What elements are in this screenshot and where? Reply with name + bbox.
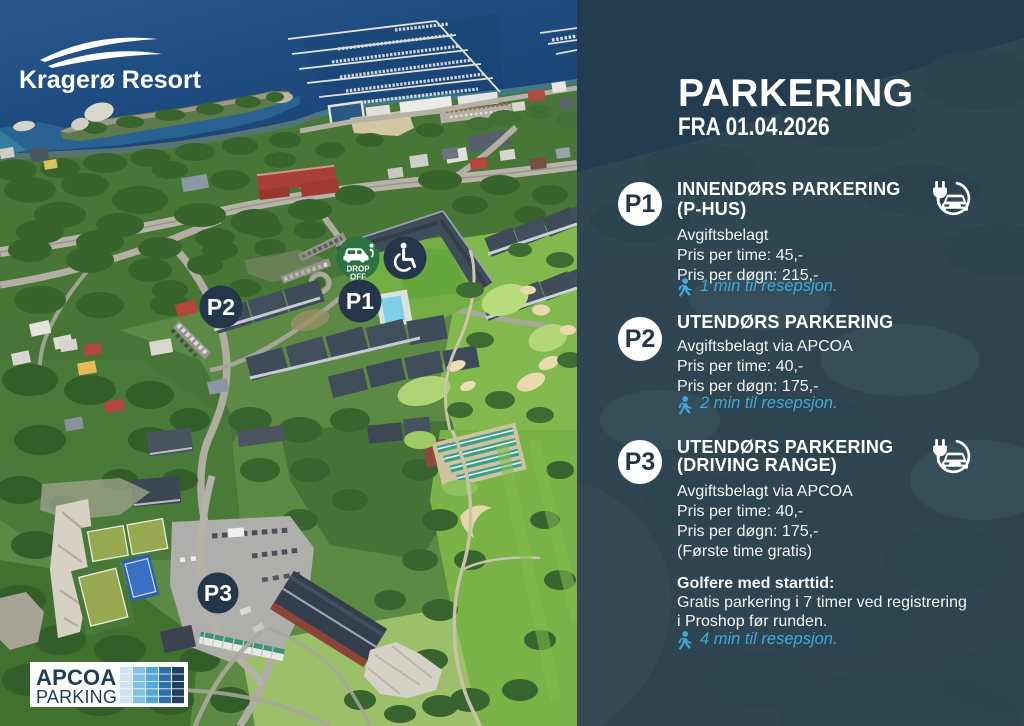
svg-text:PARKING: PARKING <box>36 687 117 707</box>
svg-text:P1: P1 <box>346 288 374 314</box>
svg-text:OFF: OFF <box>350 273 366 282</box>
svg-text:Kragerø Resort: Kragerø Resort <box>19 66 202 94</box>
svg-text:P3: P3 <box>204 580 232 606</box>
svg-text:P2: P2 <box>207 294 235 320</box>
